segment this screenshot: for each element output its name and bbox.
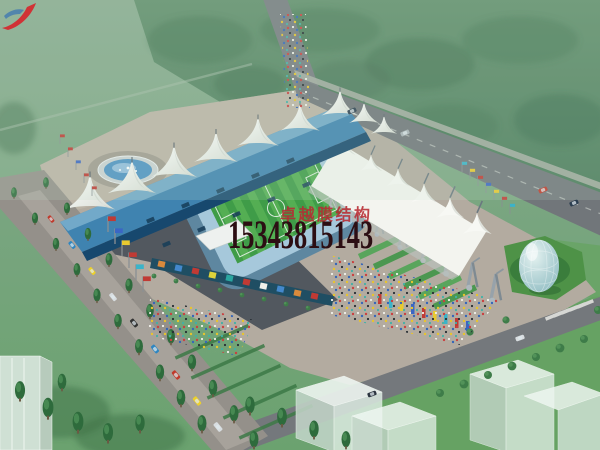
- haze-overlay: [0, 0, 600, 200]
- rendering-canvas: 卓越膜结构 15343815143: [0, 0, 600, 450]
- phone-number-watermark: 15343815143: [228, 215, 373, 255]
- watermark-logo-icon: [0, 0, 40, 34]
- dome-highlight: [526, 243, 538, 261]
- building-block: [470, 360, 554, 450]
